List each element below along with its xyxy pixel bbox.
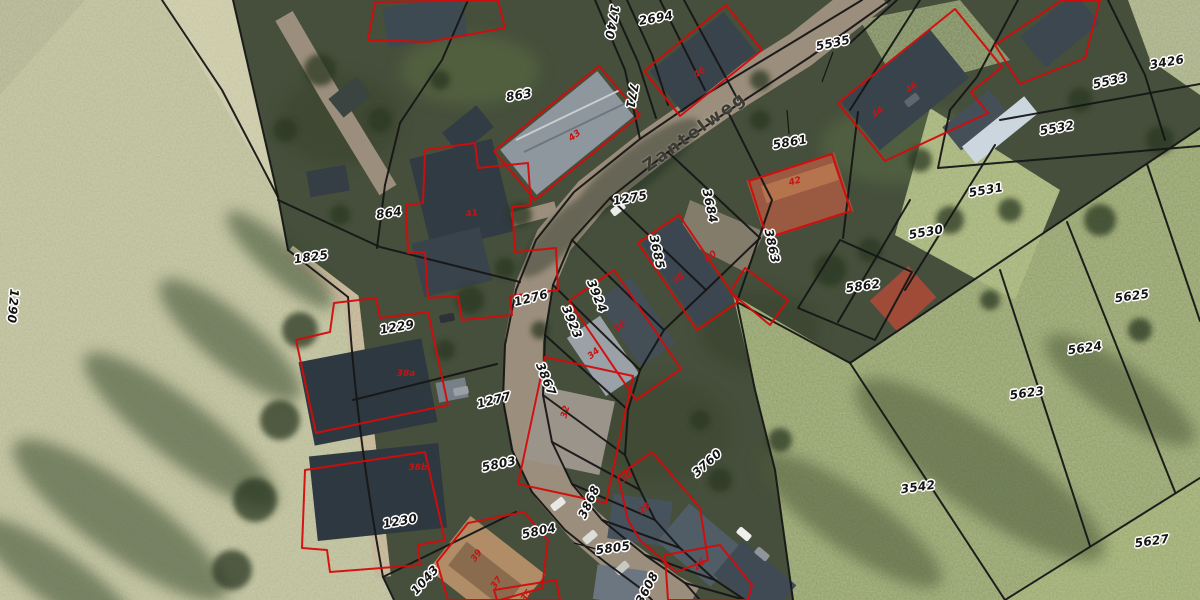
map-canvas[interactable]: Zantelweg 174026945535342686377155335532… <box>0 0 1200 600</box>
aerial-basemap <box>0 0 1200 600</box>
